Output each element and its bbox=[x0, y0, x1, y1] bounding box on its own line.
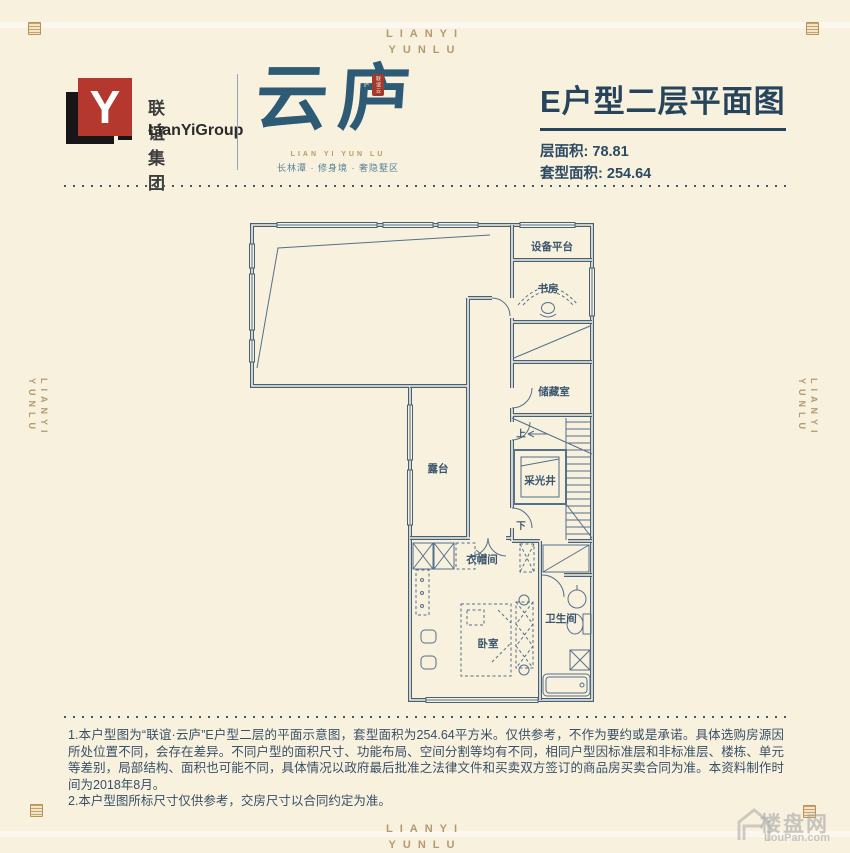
slope-room-line bbox=[514, 326, 590, 358]
stairs-up-label: 上 bbox=[516, 428, 526, 440]
unit-area-line: 套型面积: 254.64 bbox=[540, 163, 790, 185]
floor-area-label: 层面积: bbox=[540, 144, 588, 160]
right-edge-banner: LIANYI YUNLU bbox=[796, 378, 820, 478]
banner-line2: YUNLU bbox=[27, 378, 37, 434]
top-banner: LIANYI YUNLU bbox=[0, 26, 850, 58]
brand-block: 云庐 联谊云庐 LIAN YI YUN LU 长林潭 · 修身境 · 奢隐墅区 bbox=[250, 58, 430, 178]
roof-slope-line bbox=[257, 235, 490, 368]
banner-line1: LIANYI bbox=[0, 821, 850, 837]
plan-title-block: E户型二层平面图 层面积: 78.81 套型面积: 254.64 bbox=[540, 76, 790, 185]
room-label-storage: 储藏室 bbox=[538, 385, 570, 398]
brand-latin: LIAN YI YUN LU bbox=[258, 151, 418, 158]
page-title: E户型二层平面图 bbox=[540, 76, 786, 131]
floor-area-line: 层面积: 78.81 bbox=[540, 141, 790, 163]
watermark: 楼盘网 LouPan.com bbox=[734, 800, 850, 850]
poster: LIANYI YUNLU LIANYI YUNLU LIANYI YUNLU Y… bbox=[0, 0, 850, 850]
disclaimer: 1.本户型图为“联谊·云庐”E户型二层的平面示意图，套型面积为254.64平方米… bbox=[68, 727, 784, 810]
banner-line2: YUNLU bbox=[797, 378, 807, 434]
bottom-banner: LIANYI YUNLU bbox=[0, 821, 850, 853]
header-divider bbox=[237, 74, 238, 170]
room-label-cloakroom: 衣帽间 bbox=[466, 553, 498, 566]
company-name-cn: 联谊集团 bbox=[148, 94, 168, 194]
room-label-bathroom: 卫生间 bbox=[545, 612, 577, 625]
room-label-light-well: 采光井 bbox=[523, 474, 556, 487]
watermark-site-en: LouPan.com bbox=[764, 832, 830, 844]
bedroom-furniture bbox=[416, 570, 533, 676]
banner-line1: LIANYI bbox=[809, 378, 819, 438]
floor-area-value: 78.81 bbox=[592, 144, 628, 160]
brand-tagline: 长林潭 · 修身境 · 奢隐墅区 bbox=[248, 161, 428, 174]
logo-letter: Y bbox=[78, 78, 132, 136]
banner-line2: YUNLU bbox=[0, 837, 850, 853]
banner-line1: LIANYI bbox=[0, 26, 850, 42]
logo-mark-icon: Y bbox=[66, 78, 134, 146]
left-edge-banner: LIANYI YUNLU bbox=[26, 378, 50, 478]
floorplan-drawing: 设备平台 书房 储藏室 上 采光井 下 露台 衣帽间 卧室 卫生间 bbox=[230, 210, 620, 720]
room-label-study: 书房 bbox=[538, 282, 559, 295]
room-label-bedroom: 卧室 bbox=[478, 637, 499, 650]
disclaimer-line2: 2.本户型图所标尺寸仅供参考，交房尺寸以合同约定为准。 bbox=[68, 793, 784, 810]
unit-area-label: 套型面积: bbox=[540, 166, 603, 182]
room-label-terrace: 露台 bbox=[428, 462, 449, 475]
company-name-en: LianYiGroup bbox=[148, 122, 243, 140]
banner-line2: YUNLU bbox=[0, 42, 850, 58]
banner-line1: LIANYI bbox=[39, 378, 49, 438]
brand-name: 云庐 bbox=[253, 62, 422, 134]
room-label-equipment-platform: 设备平台 bbox=[531, 240, 573, 253]
brand-seal-stamp: 联谊云庐 bbox=[372, 74, 384, 96]
disclaimer-line1: 1.本户型图为“联谊·云庐”E户型二层的平面示意图，套型面积为254.64平方米… bbox=[68, 727, 784, 793]
stairs-down-label: 下 bbox=[516, 521, 526, 532]
unit-area-value: 254.64 bbox=[607, 166, 651, 182]
corner-seal-icon bbox=[30, 804, 43, 817]
dotted-rule-top bbox=[64, 185, 786, 187]
